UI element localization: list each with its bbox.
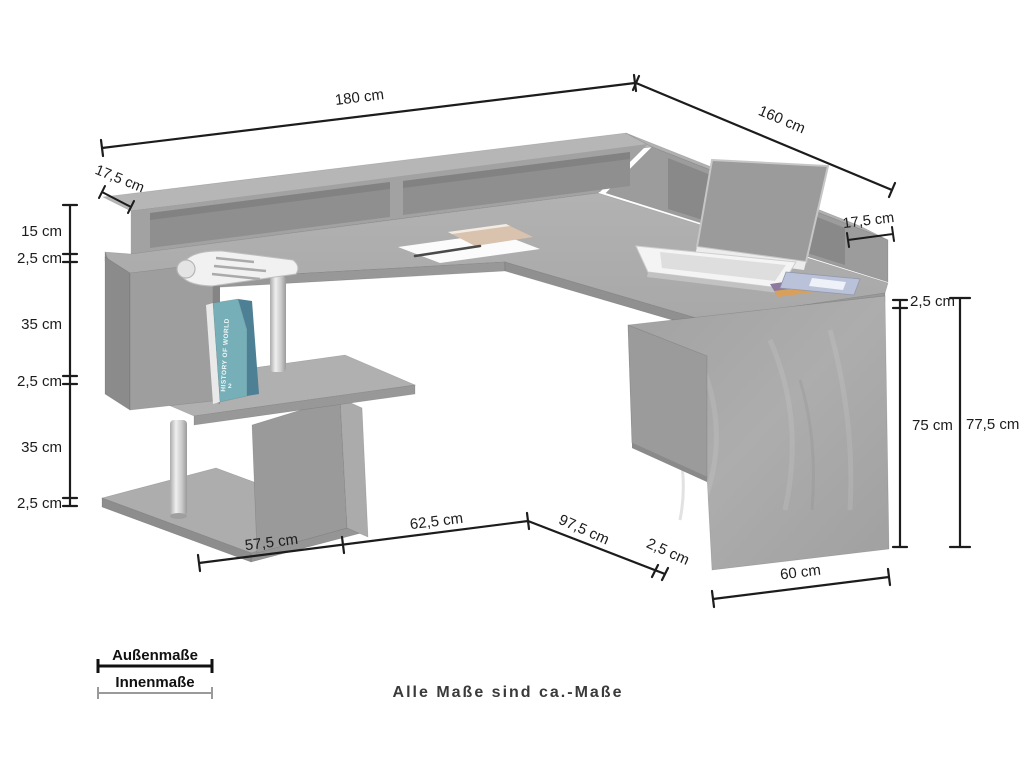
dim-bottom-label: 2,5 cm — [644, 535, 692, 569]
dim-right-label: 77,5 cm — [966, 416, 1019, 433]
dim-left-label: 15 cm — [21, 223, 62, 240]
dim-bottom-diagonal-chain: 97,5 cm 2,5 cm — [528, 511, 692, 580]
book-spine-number: 2 — [228, 383, 232, 390]
dim-riser-depth-left-label: 17,5 cm — [93, 162, 147, 196]
corner-desk-dimension-diagram: HISTORY OF WORLD 2 180 cm 160 — [0, 0, 1024, 768]
dim-top-width-label: 180 cm — [334, 86, 385, 109]
dim-top-depth-label: 160 cm — [756, 102, 808, 137]
dim-left-label: 35 cm — [21, 439, 62, 456]
shelf-lower-wall-face — [252, 398, 347, 553]
chrome-pole-lower-foot — [170, 513, 187, 519]
dim-left-label: 2,5 cm — [17, 495, 62, 512]
dim-bottom-label: 60 cm — [779, 562, 822, 584]
legend-inner-label: Innenmaße — [115, 674, 194, 691]
magazine-roll-end — [177, 260, 195, 278]
dim-riser-depth-right-label: 17,5 cm — [842, 210, 895, 232]
chrome-pole-upper — [270, 276, 286, 372]
shelf-upper-cabinet-side — [105, 257, 130, 410]
footer-note: Alle Maße sind ca.-Maße — [393, 684, 624, 701]
dim-right-label: 2,5 cm — [910, 293, 955, 310]
dim-left-label: 2,5 cm — [17, 373, 62, 390]
dim-right-inner: 2,5 cm 75 cm — [893, 293, 955, 547]
laptop-screen — [697, 160, 828, 262]
legend: Außenmaße Innenmaße — [98, 647, 212, 699]
dim-left-label: 2,5 cm — [17, 250, 62, 267]
dim-right-outer: 77,5 cm — [950, 298, 1019, 547]
dim-left-label: 35 cm — [21, 316, 62, 333]
legend-outer-label: Außenmaße — [112, 647, 198, 664]
dim-right-label: 75 cm — [912, 417, 953, 434]
chrome-pole-lower — [170, 420, 187, 516]
dim-panel-depth: 60 cm — [712, 562, 890, 607]
dim-left-chain: 15 cm 2,5 cm 35 cm 2,5 cm 35 cm 2,5 cm — [17, 205, 77, 512]
desk-illustration: HISTORY OF WORLD 2 — [102, 133, 889, 570]
